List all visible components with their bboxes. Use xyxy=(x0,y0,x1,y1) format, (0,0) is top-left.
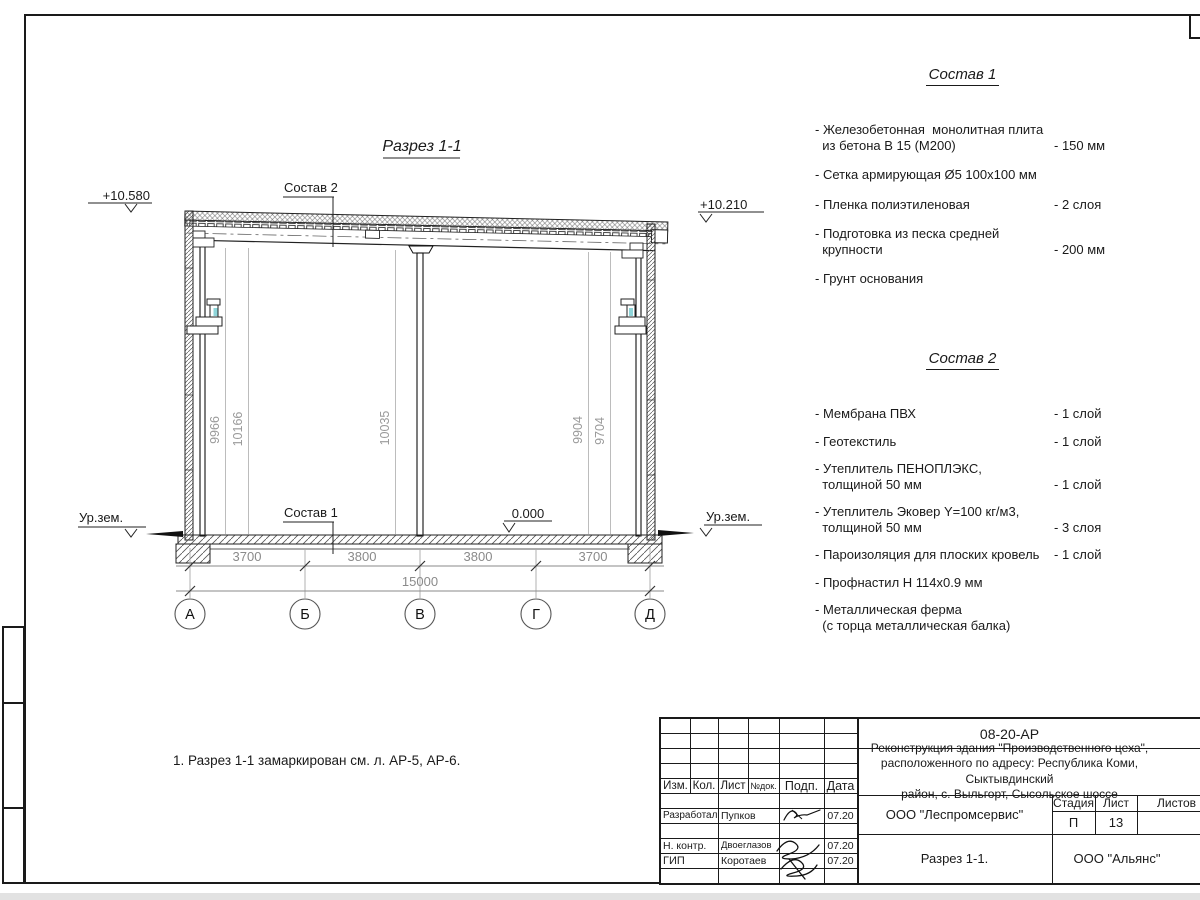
role-developer: Разработал xyxy=(663,808,718,823)
height-dim-1: 9966 xyxy=(208,416,222,444)
dim-total: 15000 xyxy=(402,574,438,589)
height-dimensions: 9966 10166 10035 9904 9704 xyxy=(208,248,611,534)
material-value: - 150 мм xyxy=(1054,138,1110,154)
col-header-ndok: №док. xyxy=(748,778,779,793)
list-item: - Подготовка из песка средней крупности-… xyxy=(815,226,1110,257)
comp2-ref-label: Состав 2 xyxy=(284,180,338,195)
composition2-list: - Мембрана ПВХ- 1 слой - Геотекстиль- 1 … xyxy=(815,406,1110,633)
material-name: - Утеплитель ПЕНОПЛЭКС, толщиной 50 мм xyxy=(815,461,1053,492)
stage-label: Стадия xyxy=(1052,795,1095,811)
axis-g: Г xyxy=(532,607,540,623)
project-name: Реконструкция здания "Производственного … xyxy=(857,748,1162,795)
material-name: - Геотекстиль xyxy=(815,434,1053,450)
sheets-total xyxy=(1137,811,1200,834)
signature-ncontrol-gip xyxy=(771,835,825,881)
col-header-kol: Кол. xyxy=(690,778,718,793)
dim-g-d: 3700 xyxy=(579,549,608,564)
material-name: - Пленка полиэтиленовая xyxy=(815,197,1053,213)
signature-developer xyxy=(780,806,824,824)
sheet-label: Лист xyxy=(1095,795,1137,811)
material-value: - 3 слоя xyxy=(1054,520,1110,536)
sheet-name: Разрез 1-1. xyxy=(857,834,1052,883)
height-dim-5: 9704 xyxy=(593,417,607,445)
dim-a-b: 3700 xyxy=(233,549,262,564)
list-item: - Сетка армирующая Ø5 100х100 мм xyxy=(815,167,1110,183)
list-item: - Пароизоляция для плоских кровель- 1 сл… xyxy=(815,547,1110,563)
date-gip: 07.20 xyxy=(824,853,857,868)
sheet-number: 13 xyxy=(1095,811,1137,834)
list-item: - Металлическая ферма (с торца металличе… xyxy=(815,602,1110,633)
material-name: - Сетка армирующая Ø5 100х100 мм xyxy=(815,167,1053,183)
material-name: - Железобетонная монолитная плита из бет… xyxy=(815,122,1053,153)
material-name: - Профнастил Н 114х0.9 мм xyxy=(815,575,1053,591)
walls-and-columns xyxy=(185,211,655,540)
list-item: - Профнастил Н 114х0.9 мм xyxy=(815,575,1110,591)
ground-level-left: Ур.зем. xyxy=(79,510,123,525)
composition1-list: - Железобетонная монолитная плита из бет… xyxy=(815,122,1110,287)
axis-v: В xyxy=(415,607,425,623)
material-name: - Утеплитель Эковер Y=100 кг/м3, толщино… xyxy=(815,504,1053,535)
dim-v-g: 3800 xyxy=(464,549,493,564)
col-header-list: Лист xyxy=(718,778,748,793)
col-header-izm: Изм. xyxy=(661,778,690,793)
material-value: - 2 слоя xyxy=(1054,197,1110,213)
material-name: - Мембрана ПВХ xyxy=(815,406,1053,422)
roof-assembly xyxy=(184,211,668,251)
composition2-title: Состав 2 xyxy=(815,350,1110,367)
material-name: - Подготовка из песка средней крупности xyxy=(815,226,1053,257)
list-item: - Утеплитель ПЕНОПЛЭКС, толщиной 50 мм- … xyxy=(815,461,1110,492)
axis-d: Д xyxy=(645,607,655,623)
list-item: - Железобетонная монолитная плита из бет… xyxy=(815,122,1110,153)
list-item: - Грунт основания xyxy=(815,271,1110,287)
height-dim-2: 10166 xyxy=(231,412,245,447)
height-dim-4: 9904 xyxy=(571,416,585,444)
composition-leaders xyxy=(283,197,334,554)
list-item: - Утеплитель Эковер Y=100 кг/м3, толщино… xyxy=(815,504,1110,535)
list-item: - Пленка полиэтиленовая- 2 слоя xyxy=(815,197,1110,213)
axis-b: Б xyxy=(300,607,310,623)
elevation-floor: 0.000 xyxy=(512,506,545,521)
material-value: - 1 слой xyxy=(1054,434,1110,450)
comp1-ref-label: Состав 1 xyxy=(284,505,338,520)
list-item: - Геотекстиль- 1 слой xyxy=(815,434,1110,450)
name-developer: Пупков xyxy=(721,808,779,823)
col-header-data: Дата xyxy=(824,778,857,793)
drawing-note: 1. Разрез 1-1 замаркирован см. л. АР-5, … xyxy=(173,753,460,768)
sheets-label: Листов xyxy=(1137,795,1200,811)
material-name: - Металлическая ферма (с торца металличе… xyxy=(815,602,1053,633)
elevation-roof-right: +10.210 xyxy=(700,197,747,212)
date-ncontrol: 07.20 xyxy=(824,838,857,853)
bottom-dimensions: 3700 3800 3800 3700 15000 xyxy=(176,548,664,598)
col-header-podp: Подп. xyxy=(779,778,824,793)
section-title: Разрез 1-1 xyxy=(382,138,461,155)
material-value: - 1 слой xyxy=(1054,406,1110,422)
drawing-sheet: 9966 10166 10035 9904 9704 3700 3800 380… xyxy=(0,0,1200,900)
title-block: Изм. Кол. Лист №док. Подп. Дата Разработ… xyxy=(659,717,1200,885)
role-ncontrol: Н. контр. xyxy=(663,838,718,853)
dim-b-v: 3800 xyxy=(348,549,377,564)
composition1-title: Состав 1 xyxy=(815,66,1110,83)
material-value: - 1 слой xyxy=(1054,477,1110,493)
role-gip: ГИП xyxy=(663,853,718,868)
ground-level-right: Ур.зем. xyxy=(706,509,750,524)
material-value: - 1 слой xyxy=(1054,547,1110,563)
date-developer: 07.20 xyxy=(824,808,857,823)
material-name: - Грунт основания xyxy=(815,271,1053,287)
axis-bubbles: А Б В Г Д xyxy=(175,599,665,629)
org-name: ООО "Леспромсервис" xyxy=(857,795,1052,834)
material-name: - Пароизоляция для плоских кровель xyxy=(815,547,1053,563)
material-value: - 200 мм xyxy=(1054,242,1110,258)
axis-a: А xyxy=(185,607,195,623)
height-dim-3: 10035 xyxy=(378,411,392,446)
stage-value: П xyxy=(1052,811,1095,834)
elevation-roof-left: +10.580 xyxy=(103,188,150,203)
list-item: - Мембрана ПВХ- 1 слой xyxy=(815,406,1110,422)
contractor-name: ООО "Альянс" xyxy=(1052,834,1182,883)
